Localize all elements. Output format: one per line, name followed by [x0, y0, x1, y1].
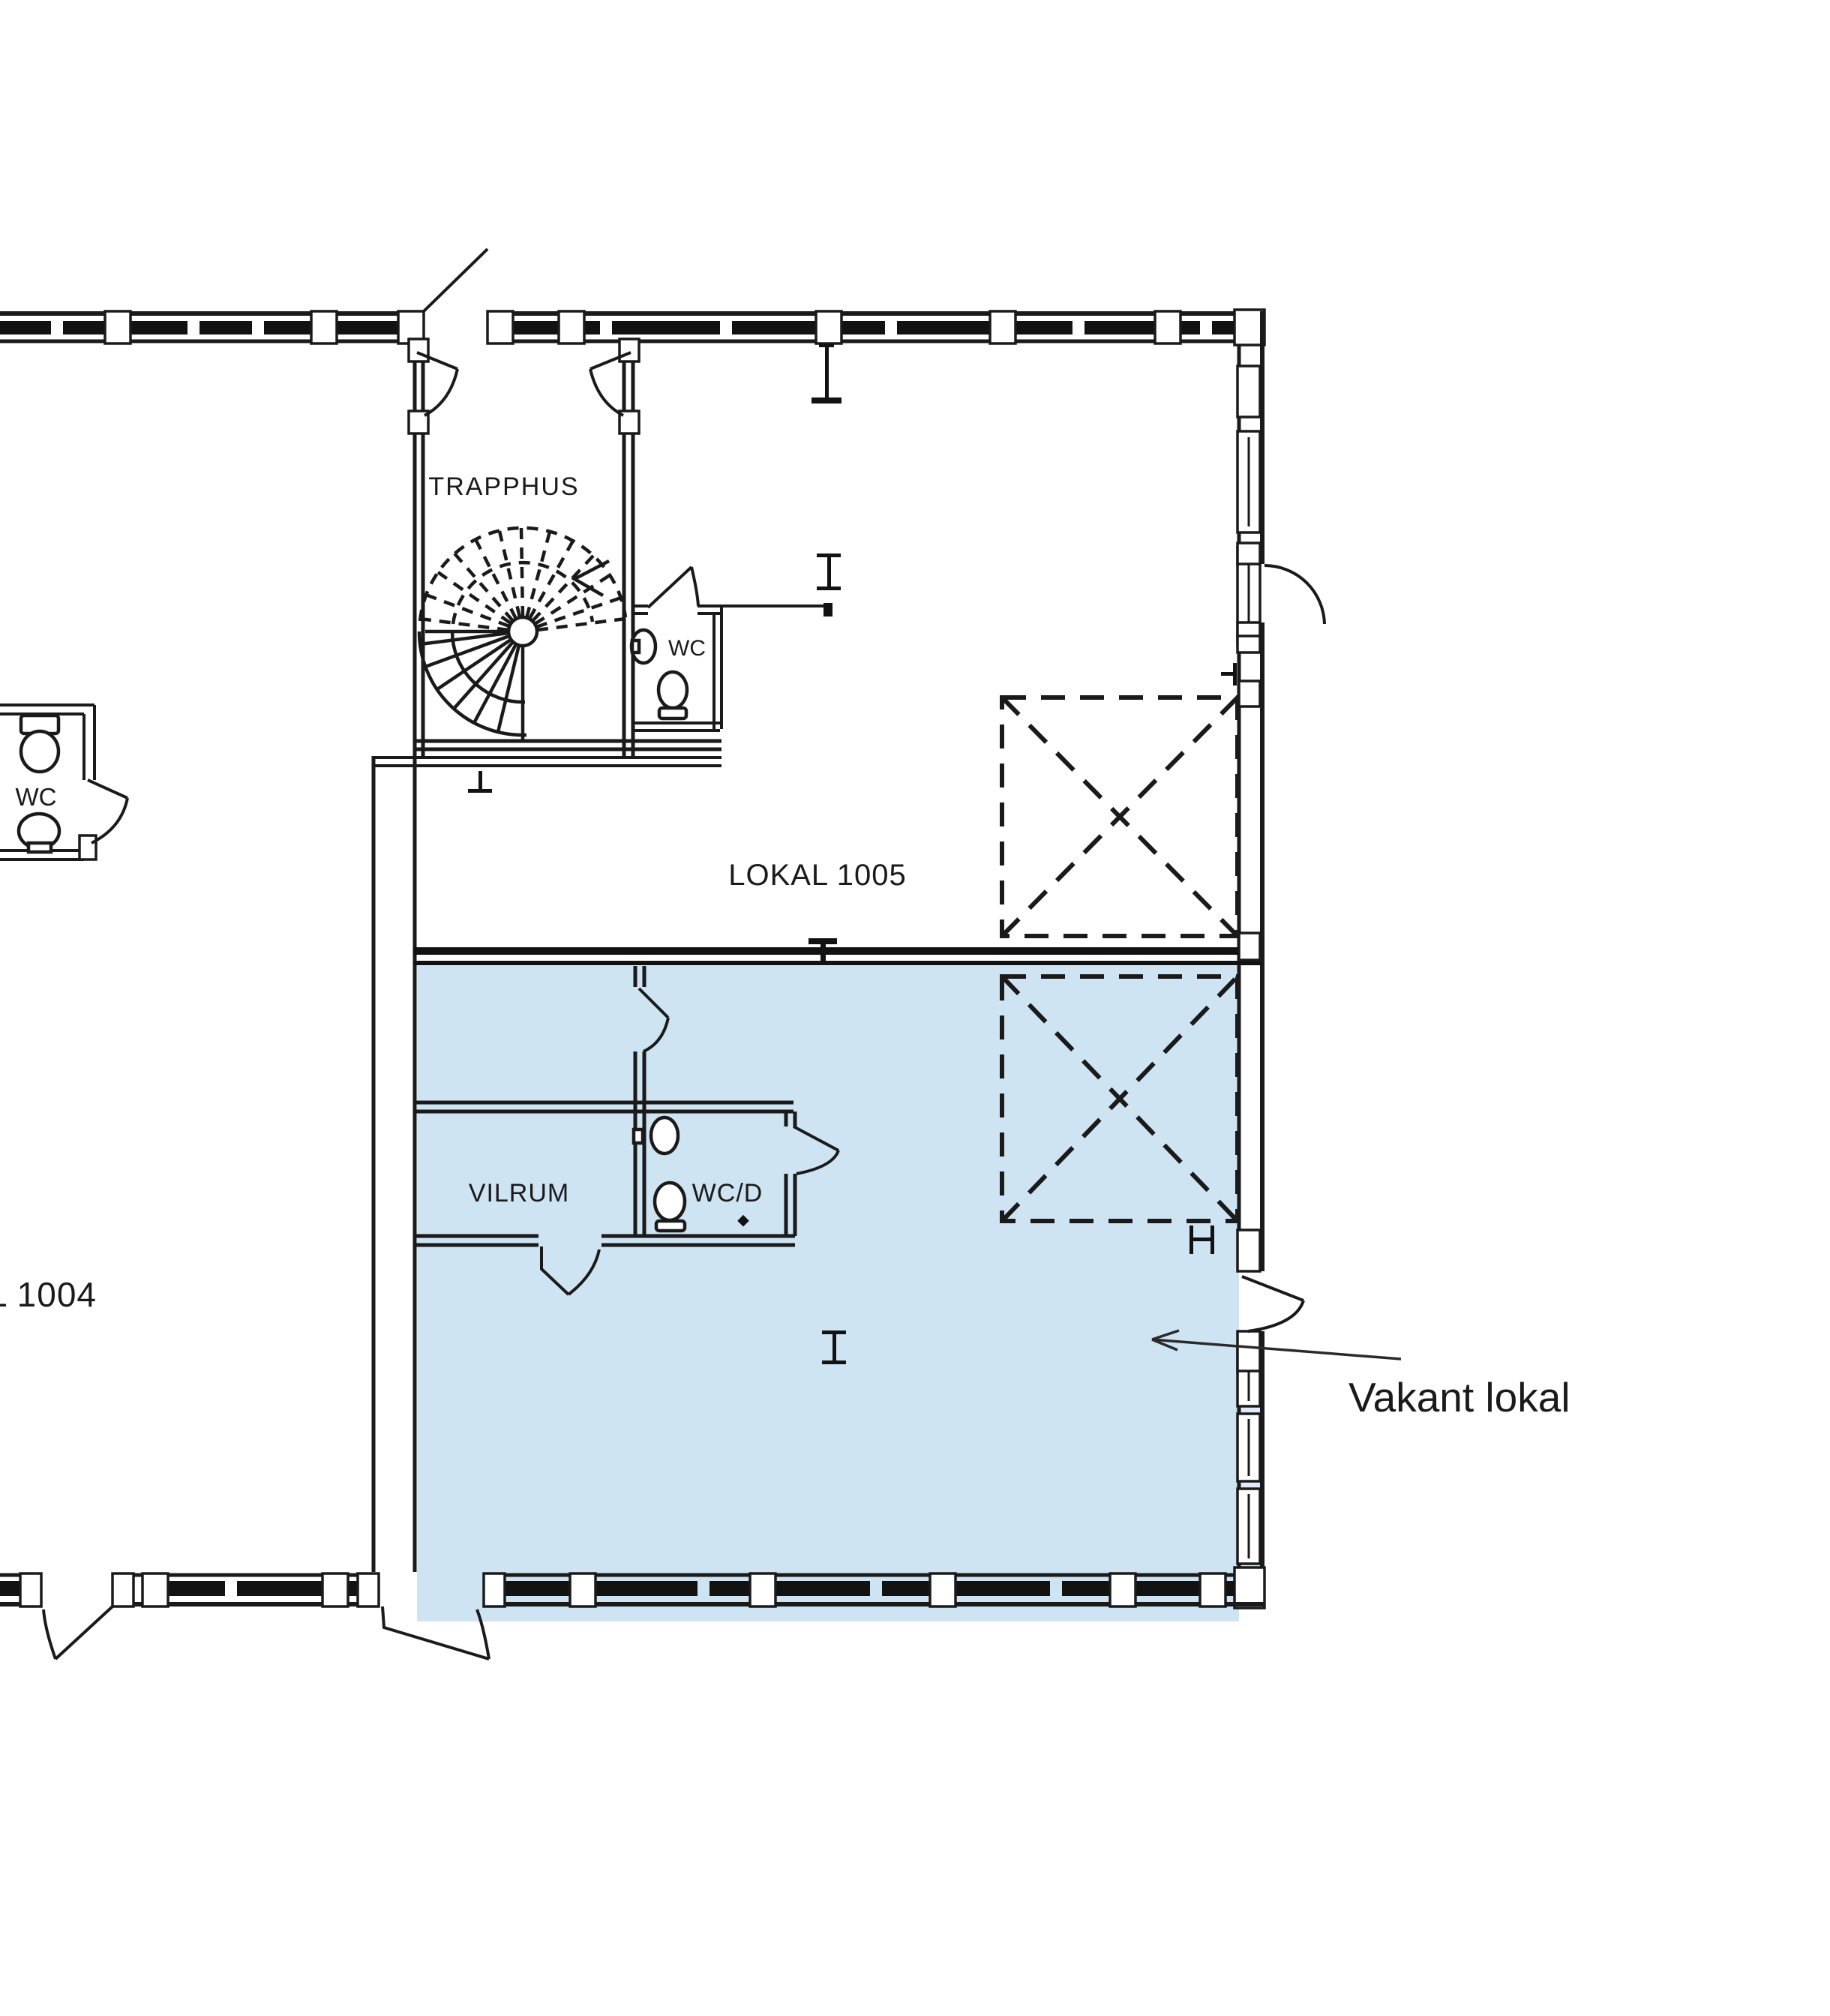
- label-vilrum: VILRUM: [469, 1179, 569, 1207]
- lokal1005-exterior-door-swing: [1264, 565, 1324, 624]
- wc-room-stair: WC: [631, 567, 832, 730]
- column-marker: [817, 553, 841, 590]
- label-lokal-1005: LOKAL 1005: [728, 859, 907, 892]
- floor-plan-page: { "drawing": { "title": "Floor plan with…: [0, 0, 1830, 2016]
- vacant-entry-door-swing: [1242, 1276, 1303, 1331]
- wc-room-left: WC: [0, 705, 127, 859]
- vacant-area-highlight: [417, 966, 1261, 1621]
- shaft-upper: [1002, 681, 1260, 960]
- column-marker: [468, 771, 492, 793]
- label-wc-left: WC: [16, 783, 57, 811]
- label-wc-stair: WC: [668, 636, 706, 661]
- wc-stair-door-swing: [648, 567, 698, 607]
- column-marker: [1221, 663, 1237, 685]
- entrance-door-leaf: [424, 249, 487, 311]
- toilet-icon: [21, 715, 58, 772]
- wc-left-door-swing: [88, 780, 127, 843]
- column-marker: [811, 343, 841, 403]
- boundary-wall: [413, 938, 1261, 965]
- spiral-staircase: [419, 528, 625, 739]
- bottom-door-swing-left: [43, 1606, 112, 1659]
- top-exterior-wall: [0, 249, 1264, 345]
- label-trapphus: TRAPPHUS: [428, 472, 579, 501]
- sink-icon: [631, 630, 655, 663]
- sink-icon: [19, 814, 59, 852]
- label-wcd: WC/D: [692, 1179, 763, 1207]
- toilet-icon: [658, 672, 687, 718]
- floor-plan-svg: TRAPPHUS WC: [0, 0, 1830, 2016]
- toilet-icon: [655, 1183, 685, 1231]
- label-vakant-lokal: Vakant lokal: [1348, 1374, 1570, 1420]
- label-lokal-1004: L 1004: [0, 1275, 97, 1314]
